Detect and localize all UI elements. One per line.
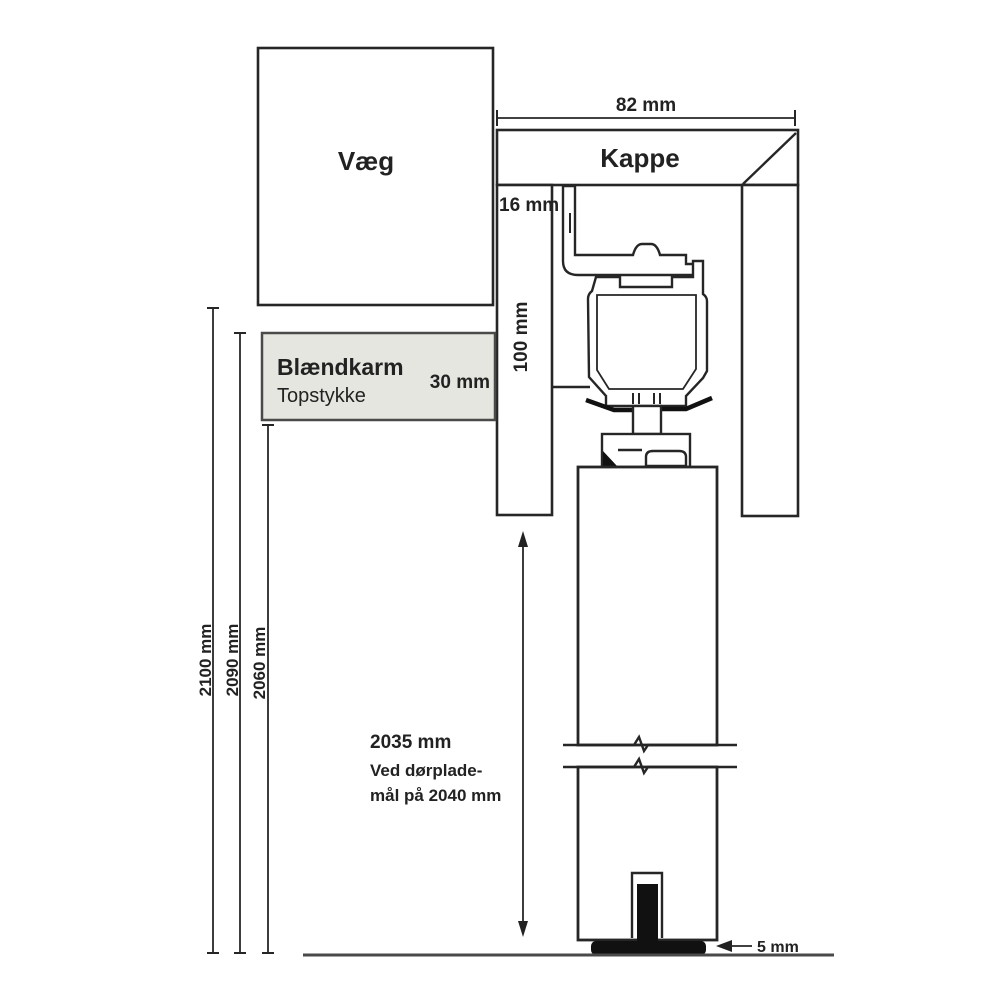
dim-door-height: 2035 mm Ved dørplade- mål på 2040 mm: [370, 531, 528, 937]
rail-profile: [586, 261, 712, 410]
frame-label: Blændkarm: [277, 354, 404, 380]
cover-right-leg: [742, 185, 798, 516]
frame-section: Blændkarm Topstykke 30 mm: [262, 333, 495, 420]
dim-floor-gap: 5 mm: [716, 939, 799, 956]
wall-section: Væg: [258, 48, 493, 305]
door-hanger: [602, 406, 690, 467]
installation-diagram: Væg Kappe 82 mm 16 mm 100 mm Blændkarm T…: [0, 0, 1000, 1000]
dim-2100-label: 2100 mm: [196, 624, 215, 697]
hanger-bolt: [633, 406, 661, 434]
dim-82-label: 82 mm: [616, 95, 676, 116]
dim-100-label: 100 mm: [511, 302, 532, 373]
frame-sublabel: Topstykke: [277, 385, 366, 407]
dim-2035-label: 2035 mm: [370, 732, 451, 753]
dim-5-arrowhead: [716, 940, 732, 952]
door-leaf: [563, 467, 737, 940]
dim-2035-arrowhead-top: [518, 531, 528, 547]
dim-2090-label: 2090 mm: [223, 624, 242, 697]
floor-guide-pin: [637, 884, 658, 946]
dim-2035-arrowhead-bottom: [518, 921, 528, 937]
dim-2060-label: 2060 mm: [250, 627, 269, 700]
dim-30-label: 30 mm: [430, 372, 490, 393]
wall-label: Væg: [338, 146, 394, 176]
door-upper-part: [578, 467, 717, 745]
dim-2035-note-line1: Ved dørplade-: [370, 761, 482, 780]
dim-16-label: 16 mm: [499, 195, 559, 216]
dim-cover-width: 82 mm: [497, 95, 795, 126]
mounting-bracket: [563, 186, 698, 275]
clamp-block: [646, 451, 686, 466]
diagram-canvas: Væg Kappe 82 mm 16 mm 100 mm Blændkarm T…: [0, 0, 1000, 1000]
dim-5-label: 5 mm: [757, 939, 799, 956]
floor-guide-base: [591, 941, 706, 955]
wall-box: [258, 48, 493, 305]
cover-label: Kappe: [600, 143, 679, 173]
dim-2035-note-line2: mål på 2040 mm: [370, 786, 501, 805]
bracket-profile: [563, 186, 698, 275]
